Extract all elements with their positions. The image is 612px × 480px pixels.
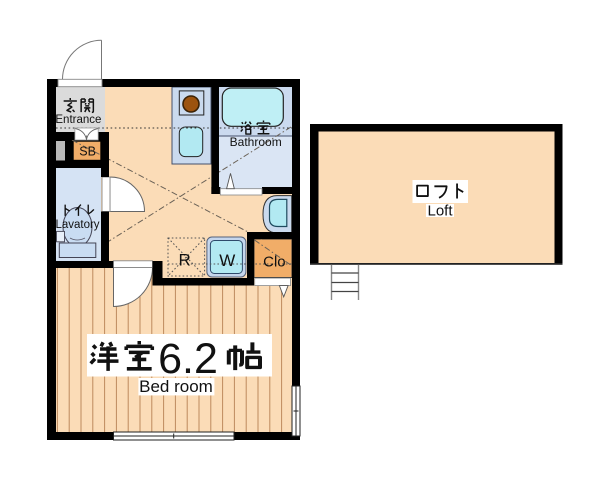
svg-text:Bed room: Bed room — [139, 377, 213, 396]
svg-text:Clo: Clo — [263, 254, 286, 271]
svg-text:W: W — [219, 251, 235, 270]
svg-text:6.2: 6.2 — [158, 335, 218, 383]
svg-text:Loft: Loft — [427, 203, 453, 220]
svg-text:Lavatory: Lavatory — [55, 219, 99, 231]
svg-text:SB: SB — [79, 145, 96, 159]
svg-text:Entrance: Entrance — [55, 114, 101, 126]
svg-text:Bathroom: Bathroom — [230, 135, 282, 149]
svg-text:R: R — [178, 251, 190, 270]
